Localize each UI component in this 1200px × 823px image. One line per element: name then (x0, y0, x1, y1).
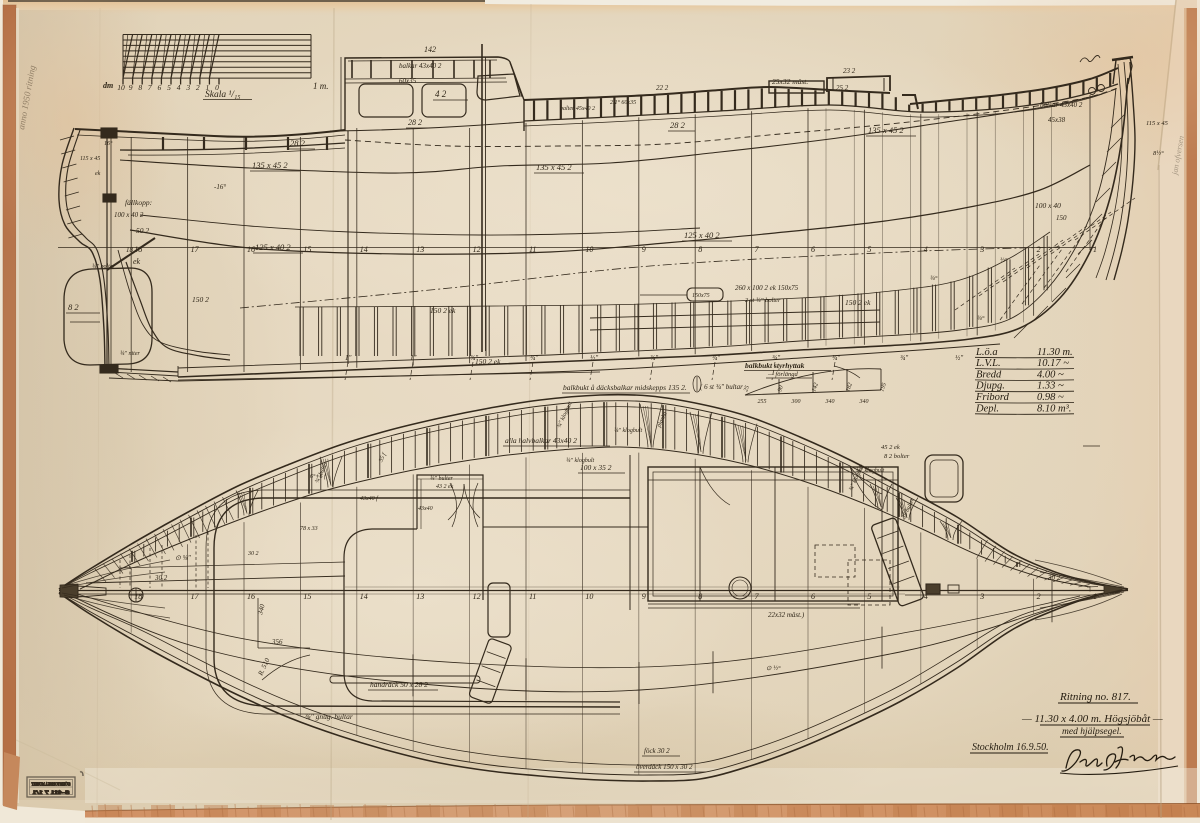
svg-text:17: 17 (191, 592, 200, 601)
svg-text:1 m.: 1 m. (313, 81, 329, 91)
svg-text:balter 45x40 2: balter 45x40 2 (560, 105, 595, 112)
svg-text:dm: dm (103, 81, 113, 90)
svg-text:¾": ¾" (650, 354, 658, 362)
svg-text:balkar 43x40 2: balkar 43x40 2 (399, 62, 442, 70)
svg-text:5: 5 (867, 245, 871, 254)
svg-text:6: 6 (811, 245, 815, 254)
svg-text:25 2: 25 2 (836, 84, 849, 92)
svg-text:12: 12 (473, 592, 481, 601)
svg-text:— 11.30 x 4.00 m. Högsjöbåt —: — 11.30 x 4.00 m. Högsjöbåt — (1021, 713, 1163, 725)
svg-text:2 st ¾" bolter: 2 st ¾" bolter (745, 297, 781, 304)
svg-text:fällkopp:: fällkopp: (125, 198, 152, 207)
svg-text:9: 9 (129, 83, 133, 92)
svg-text:43x40: 43x40 (418, 505, 433, 512)
svg-text:8: 8 (138, 83, 142, 92)
svg-text:3: 3 (979, 245, 984, 254)
svg-text:L.ö.a: L.ö.a (975, 347, 998, 358)
svg-text:¾°: ¾° (977, 315, 985, 322)
svg-text:6: 6 (158, 83, 162, 92)
svg-text:45 2 ek: 45 2 ek (881, 444, 900, 451)
svg-text:¾" niter: ¾" niter (120, 351, 141, 357)
svg-text:45x38: 45x38 (1048, 116, 1066, 124)
svg-text:17: 17 (191, 245, 200, 254)
svg-text:8.10 m³.: 8.10 m³. (1037, 403, 1071, 414)
svg-text:2: 2 (1037, 245, 1041, 254)
svg-text:— förlängd: — förlängd (767, 371, 799, 378)
svg-text:½°: ½° (1000, 257, 1008, 264)
svg-text:balkar 43x40 2: balkar 43x40 2 (1040, 101, 1083, 109)
svg-text:28 2: 28 2 (670, 120, 686, 130)
svg-text:135 x 45 2: 135 x 45 2 (252, 160, 288, 170)
svg-text:340: 340 (859, 398, 869, 405)
svg-text:18: 18 (126, 246, 134, 254)
svg-text:1: 1 (1093, 245, 1097, 254)
svg-text:8 2 bolter: 8 2 bolter (884, 453, 910, 460)
svg-text:14: 14 (360, 592, 368, 601)
svg-text:30 2: 30 2 (247, 551, 259, 557)
svg-text:Ritning no. 817.: Ritning no. 817. (1059, 691, 1131, 703)
svg-text:Djupg.: Djupg. (975, 381, 1005, 392)
svg-text:4: 4 (924, 245, 928, 254)
svg-text:2: 2 (196, 83, 200, 92)
svg-text:⅜" gnug. bultar: ⅜" gnug. bultar (305, 712, 353, 721)
svg-text:10: 10 (585, 592, 593, 601)
svg-text:100 x 40 2: 100 x 40 2 (114, 211, 144, 219)
svg-text:¾" klogbult: ¾" klogbult (566, 458, 595, 464)
svg-text:Depl.: Depl. (975, 403, 999, 414)
svg-text:22 2: 22 2 (656, 84, 669, 92)
svg-text:23 2: 23 2 (843, 67, 856, 75)
svg-text:8 2: 8 2 (68, 302, 79, 312)
svg-text:150: 150 (1056, 214, 1067, 222)
svg-text:0.98 ~: 0.98 ~ (1037, 392, 1064, 403)
svg-text:ek: ek (95, 171, 101, 177)
svg-text:150 2: 150 2 (192, 295, 209, 304)
svg-text:överdäck 150 x 30 2: överdäck 150 x 30 2 (636, 763, 693, 771)
svg-text:115 x 45: 115 x 45 (1146, 120, 1169, 127)
svg-text:balkbukt styrhyttak: balkbukt styrhyttak (745, 361, 805, 370)
svg-text:100 x 35 2: 100 x 35 2 (580, 463, 612, 472)
svg-text:1.33 ~: 1.33 ~ (1037, 381, 1064, 392)
svg-text:13: 13 (416, 592, 424, 601)
svg-text:2.1° 60x35: 2.1° 60x35 (610, 99, 636, 106)
svg-text:135 x 45 2: 135 x 45 2 (868, 125, 904, 135)
svg-text:¾" bulter: ¾" bulter (430, 476, 454, 482)
svg-text:260 x 100 2 ek 150x75: 260 x 100 2 ek 150x75 (735, 284, 799, 292)
svg-text:142: 142 (424, 45, 436, 54)
svg-text:15: 15 (303, 245, 311, 254)
svg-text:¾" klogbult: ¾" klogbult (614, 428, 643, 434)
svg-text:¾" bolter: ¾" bolter (92, 264, 116, 270)
svg-text:⊙ ½°: ⊙ ½° (766, 665, 781, 672)
svg-text:L.V.L.: L.V.L. (975, 358, 1001, 369)
svg-text:¾": ¾" (900, 354, 908, 362)
svg-text:9: 9 (642, 592, 646, 601)
svg-text:6: 6 (811, 592, 815, 601)
svg-text:¾": ¾" (530, 354, 538, 362)
svg-text:3: 3 (185, 83, 190, 92)
svg-text:8: 8 (698, 245, 702, 254)
svg-text:300: 300 (791, 399, 801, 405)
svg-text:16: 16 (247, 592, 255, 601)
svg-text:125 x 40 2: 125 x 40 2 (255, 242, 291, 252)
svg-text:9: 9 (642, 245, 646, 254)
svg-text:125 x 40 2: 125 x 40 2 (684, 230, 720, 240)
svg-text:balkbukt å däcksbalkar midske: balkbukt å däcksbalkar midskepps 135 2. (563, 383, 687, 392)
svg-text:¾": ¾" (832, 354, 840, 362)
svg-text:13: 13 (416, 245, 424, 254)
svg-text:43x40 f: 43x40 f (360, 495, 379, 502)
svg-text:11.30 m.: 11.30 m. (1037, 347, 1073, 358)
svg-text:¾°: ¾° (930, 275, 938, 282)
svg-text:S-411 7 1/1: S-411 7 1/1 (32, 790, 69, 796)
svg-text:1": 1" (345, 354, 352, 362)
svg-text:22x32 mäst.): 22x32 mäst.) (768, 611, 805, 619)
svg-text:Bredd: Bredd (976, 369, 1002, 380)
svg-text:7: 7 (148, 83, 152, 92)
svg-text:43 2 ek: 43 2 ek (436, 483, 454, 490)
svg-text:15: 15 (303, 592, 311, 601)
svg-text:( 6 st ¾" bultar: ( 6 st ¾" bultar (700, 383, 743, 391)
svg-text:28 2: 28 2 (290, 138, 306, 148)
svg-text:-16°: -16° (214, 183, 226, 191)
svg-text:Stockholm 16.9.50.: Stockholm 16.9.50. (972, 742, 1049, 753)
svg-text:100 x 40: 100 x 40 (1035, 201, 1061, 210)
svg-text:¾": ¾" (712, 354, 720, 362)
svg-text:255: 255 (758, 399, 767, 405)
svg-text:340: 340 (825, 398, 835, 405)
svg-text:30 2: 30 2 (154, 574, 168, 582)
svg-text:med hjälpsegel.: med hjälpsegel. (1062, 727, 1122, 737)
svg-text:150x75: 150x75 (692, 293, 710, 299)
svg-text:2: 2 (1037, 592, 1041, 601)
svg-text:handräck 50 x 28 2: handräck 50 x 28 2 (370, 680, 428, 689)
svg-text:4 2: 4 2 (435, 89, 447, 99)
svg-text:115 x 45: 115 x 45 (80, 155, 100, 162)
svg-text:5: 5 (867, 592, 871, 601)
svg-text:10.17 ~: 10.17 ~ (1037, 358, 1069, 369)
svg-text:150 2 ek: 150 2 ek (430, 306, 456, 315)
svg-text:25x32 mäst.: 25x32 mäst. (772, 77, 808, 86)
svg-text:Skala ¹/₁₅: Skala ¹/₁₅ (205, 90, 241, 100)
svg-text:SJÖHISTORISKA MUSEET: SJÖHISTORISKA MUSEET (31, 782, 71, 787)
svg-text:30 2: 30 2 (1047, 574, 1061, 582)
svg-text:4: 4 (177, 83, 181, 92)
svg-text:11: 11 (529, 592, 536, 601)
svg-text:⊙ ⅝": ⊙ ⅝" (175, 554, 191, 562)
svg-text:14: 14 (360, 245, 368, 254)
svg-text:½": ½" (590, 354, 598, 362)
svg-text:4.00 ~: 4.00 ~ (1037, 369, 1064, 380)
svg-text:150 2 ek: 150 2 ek (475, 357, 501, 366)
svg-text:ek: ek (133, 257, 141, 266)
svg-text:alla halvbalkar 43x40 2: alla halvbalkar 43x40 2 (505, 436, 577, 445)
svg-text:135 x 45 2: 135 x 45 2 (536, 162, 572, 172)
svg-text:5: 5 (167, 83, 171, 92)
svg-text:½": ½" (955, 354, 963, 362)
svg-text:8½°: 8½° (1153, 150, 1164, 157)
svg-text:3: 3 (979, 592, 984, 601)
svg-text:28 2: 28 2 (408, 118, 422, 127)
svg-text:föck 30 2: föck 30 2 (644, 747, 670, 755)
svg-text:78 x 33: 78 x 33 (300, 526, 318, 532)
svg-text:50 2: 50 2 (136, 226, 149, 235)
svg-text:1": 1" (410, 354, 417, 362)
svg-text:Fribord: Fribord (975, 392, 1010, 403)
svg-text:60x35: 60x35 (399, 77, 417, 85)
svg-text:16°: 16° (104, 140, 113, 147)
svg-text:150 2 ek: 150 2 ek (845, 298, 871, 307)
svg-text:356: 356 (271, 638, 283, 646)
svg-text:10: 10 (117, 83, 125, 92)
svg-text:12: 12 (473, 245, 481, 254)
